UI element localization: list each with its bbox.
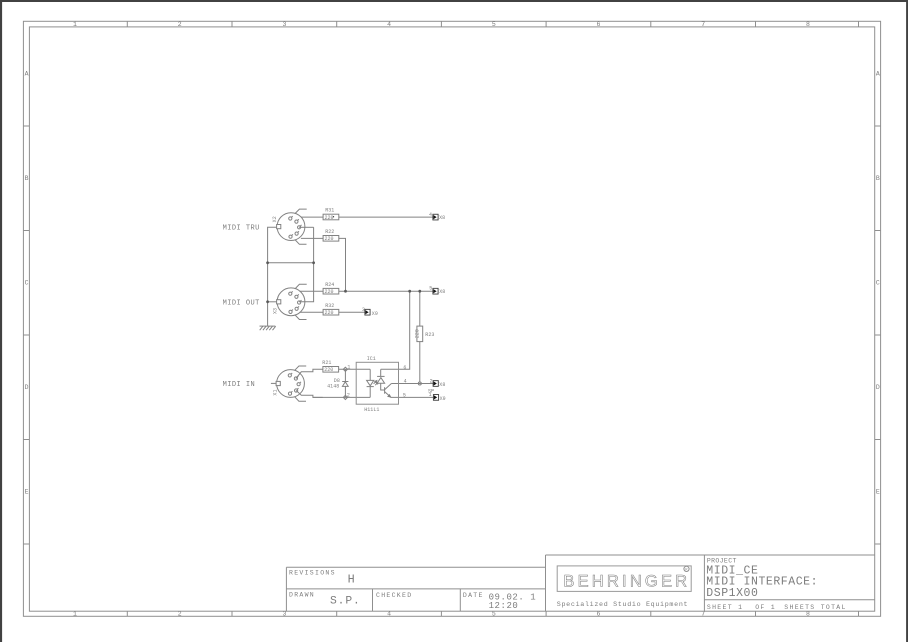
svg-text:MIDI TRU: MIDI TRU bbox=[223, 224, 260, 232]
svg-text:MIDI OUT: MIDI OUT bbox=[223, 299, 260, 307]
svg-text:3: 3 bbox=[282, 610, 286, 617]
svg-text:R31: R31 bbox=[325, 208, 334, 214]
svg-text:Specialized Studio Equipment: Specialized Studio Equipment bbox=[557, 601, 688, 609]
svg-text:1: 1 bbox=[73, 610, 77, 617]
svg-text:220: 220 bbox=[325, 236, 334, 242]
svg-text:6: 6 bbox=[403, 365, 406, 371]
svg-text:4: 4 bbox=[404, 378, 407, 384]
svg-text:5: 5 bbox=[429, 285, 432, 291]
svg-text:E: E bbox=[25, 489, 29, 496]
svg-text:DATE: DATE bbox=[463, 592, 484, 599]
svg-text:4: 4 bbox=[429, 212, 432, 218]
svg-text:MIDI IN: MIDI IN bbox=[223, 381, 256, 389]
svg-text:2: 2 bbox=[347, 392, 350, 398]
svg-text:R32: R32 bbox=[325, 303, 334, 309]
svg-text:S.P.: S.P. bbox=[330, 595, 361, 607]
svg-text:4: 4 bbox=[387, 610, 391, 617]
svg-text:2: 2 bbox=[178, 610, 182, 617]
svg-text:X9: X9 bbox=[372, 311, 378, 317]
svg-text:7: 7 bbox=[701, 610, 705, 617]
svg-text:IC1: IC1 bbox=[367, 356, 376, 362]
svg-text:X9: X9 bbox=[440, 396, 446, 402]
svg-text:X8: X8 bbox=[439, 215, 445, 221]
svg-text:OF 1: OF 1 bbox=[755, 604, 776, 611]
svg-text:12:20: 12:20 bbox=[489, 601, 519, 611]
svg-text:6: 6 bbox=[597, 21, 601, 28]
svg-text:1: 1 bbox=[73, 21, 77, 28]
svg-text:D: D bbox=[25, 384, 29, 391]
svg-text:CHECKED: CHECKED bbox=[376, 592, 412, 599]
svg-text:R24: R24 bbox=[325, 282, 334, 288]
svg-text:X8: X8 bbox=[439, 289, 445, 295]
svg-text:DSP1X00: DSP1X00 bbox=[706, 587, 758, 600]
svg-text:7: 7 bbox=[701, 21, 705, 28]
svg-text:C: C bbox=[25, 280, 29, 287]
svg-text:SP: SP bbox=[428, 389, 434, 395]
svg-text:220: 220 bbox=[325, 310, 334, 316]
svg-text:R22: R22 bbox=[325, 229, 334, 235]
svg-text:B: B bbox=[876, 175, 880, 182]
svg-text:BEHRINGER: BEHRINGER bbox=[563, 572, 690, 590]
svg-text:SHEET 1: SHEET 1 bbox=[707, 604, 743, 611]
svg-text:X2: X2 bbox=[272, 216, 278, 222]
svg-text:C: C bbox=[876, 280, 880, 287]
svg-text:4148: 4148 bbox=[327, 384, 339, 390]
svg-text:8: 8 bbox=[806, 610, 810, 617]
svg-text:R23: R23 bbox=[425, 332, 434, 338]
svg-text:6: 6 bbox=[597, 610, 601, 617]
svg-text:3: 3 bbox=[282, 21, 286, 28]
svg-text:1: 1 bbox=[347, 364, 350, 370]
svg-text:REVISIONS: REVISIONS bbox=[289, 569, 336, 576]
svg-text:X8: X8 bbox=[439, 382, 445, 388]
svg-text:4: 4 bbox=[387, 21, 391, 28]
svg-text:8: 8 bbox=[806, 21, 810, 28]
svg-text:A: A bbox=[876, 71, 880, 78]
svg-text:E: E bbox=[876, 489, 880, 496]
svg-text:R21: R21 bbox=[322, 360, 331, 366]
svg-text:220: 220 bbox=[325, 289, 334, 295]
svg-text:2: 2 bbox=[430, 378, 433, 384]
svg-text:3: 3 bbox=[362, 307, 365, 313]
svg-text:X1: X1 bbox=[273, 389, 279, 395]
svg-text:DRAWN: DRAWN bbox=[289, 591, 315, 598]
svg-text:220: 220 bbox=[324, 367, 333, 373]
svg-text:A: A bbox=[25, 71, 29, 78]
svg-text:SHEETS TOTAL: SHEETS TOTAL bbox=[784, 604, 846, 611]
svg-text:220: 220 bbox=[325, 215, 334, 221]
svg-text:H: H bbox=[348, 573, 355, 587]
svg-text:H11L1: H11L1 bbox=[364, 407, 379, 413]
svg-text:5: 5 bbox=[492, 21, 496, 28]
svg-text:X3: X3 bbox=[272, 308, 278, 314]
svg-text:D: D bbox=[876, 384, 880, 391]
svg-text:220: 220 bbox=[415, 329, 421, 338]
svg-text:B: B bbox=[25, 175, 29, 182]
svg-text:5: 5 bbox=[403, 392, 406, 398]
svg-text:PROJECT: PROJECT bbox=[707, 557, 737, 564]
svg-text:5: 5 bbox=[492, 610, 496, 617]
svg-text:2: 2 bbox=[178, 21, 182, 28]
